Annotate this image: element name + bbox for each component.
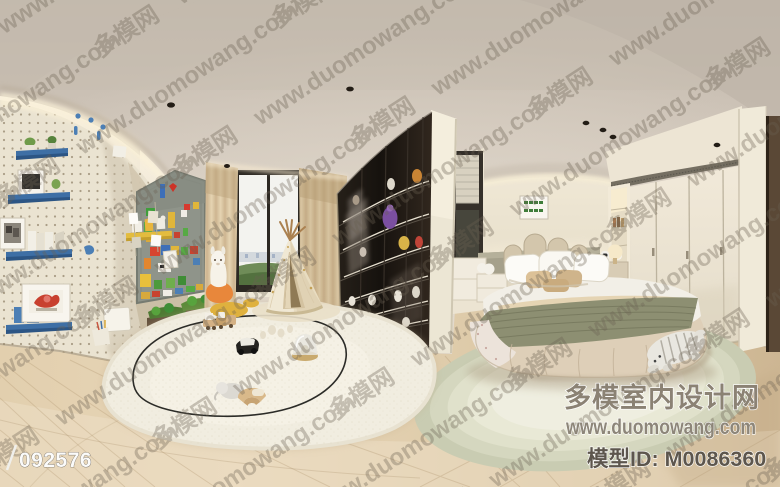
svg-text:多模室内设计网: 多模室内设计网 [564,382,760,413]
svg-text:092576: 092576 [19,449,92,472]
svg-text:模型ID: M0086360: 模型ID: M0086360 [587,447,766,471]
svg-text:www.duomowang.com: www.duomowang.com [565,416,756,439]
